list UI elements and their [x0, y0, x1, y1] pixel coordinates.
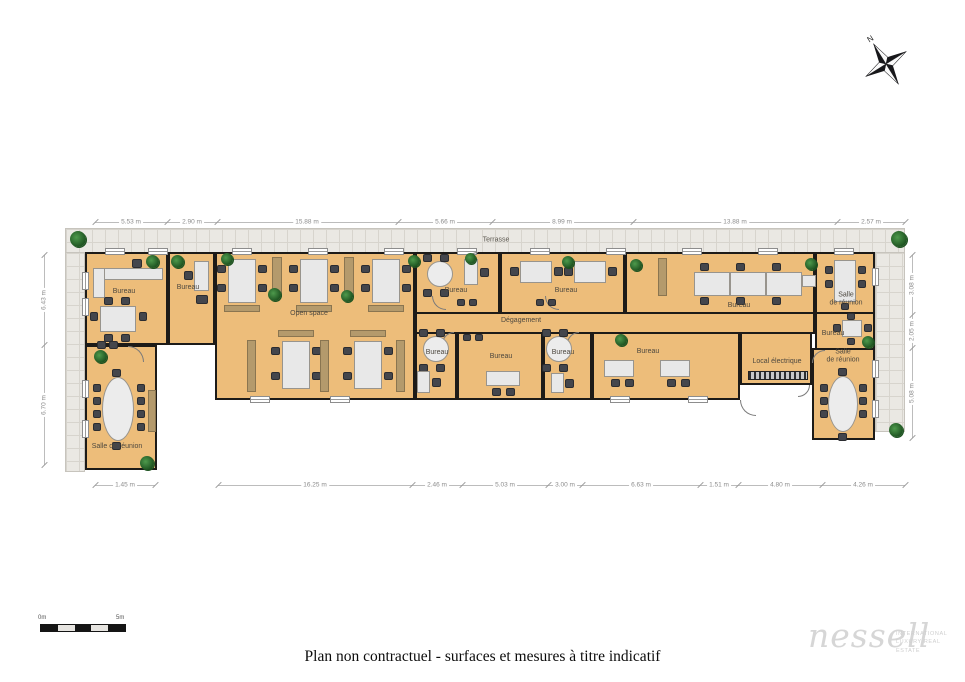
desk: [660, 360, 690, 377]
desk: [694, 272, 730, 296]
cabinet: [396, 340, 405, 392]
office-chair: [542, 364, 551, 372]
scale-zero-label: 0m: [38, 615, 46, 621]
office-chair: [847, 313, 855, 320]
compass-north-label: N: [866, 34, 876, 45]
room-label: Bureau: [637, 348, 660, 356]
logo-tagline: INTERNATIONAL LUXURY REAL ESTATE: [896, 630, 958, 655]
office-chair: [772, 297, 781, 305]
dimension-label: 4.80 m: [768, 482, 792, 489]
office-chair: [402, 265, 411, 273]
plant-icon: [805, 258, 817, 270]
meeting-table: [102, 377, 134, 441]
plant-icon: [615, 334, 627, 346]
logo-tagline-line1: INTERNATIONAL: [896, 630, 958, 638]
office-chair: [847, 338, 855, 345]
dimension-label: 6.43 m: [41, 288, 48, 312]
scale-segment: [108, 625, 125, 631]
window: [250, 396, 270, 403]
office-chair: [419, 329, 428, 337]
room-label: Local électrique: [752, 358, 801, 366]
office-chair: [859, 397, 867, 405]
room-label: Bureau: [728, 302, 751, 310]
office-chair: [97, 341, 106, 349]
office-chair: [736, 263, 745, 271]
dimension-label: 15.88 m: [293, 219, 321, 226]
dimension-tick: [902, 482, 908, 488]
equipment-rack: [748, 371, 808, 380]
dimension-label: 16.25 m: [301, 482, 329, 489]
office-chair: [196, 295, 208, 304]
office-chair: [772, 263, 781, 271]
scale-bar: [40, 624, 126, 632]
office-chair: [536, 299, 544, 306]
window: [82, 420, 89, 438]
office-chair: [121, 334, 130, 342]
office-chair: [559, 329, 568, 337]
floor-plan-page: N BureauBureauOpen spaceBureauBureauDéga…: [0, 0, 965, 682]
logo-tagline-line2: LUXURY REAL ESTATE: [896, 638, 958, 655]
dimension-label: 5.03 m: [493, 482, 517, 489]
office-chair: [436, 364, 445, 372]
scale-segment: [91, 625, 108, 631]
window: [308, 248, 328, 255]
office-chair: [384, 347, 393, 355]
dimension-label: 1.51 m: [707, 482, 731, 489]
dimension-label: 3.00 m: [553, 482, 577, 489]
cabinet: [148, 390, 156, 432]
plant-icon: [341, 290, 353, 302]
desk: [766, 272, 802, 296]
window: [384, 248, 404, 255]
office-chair: [492, 388, 501, 396]
office-chair: [469, 299, 477, 306]
plant-icon: [70, 231, 86, 247]
room-label: Bureau: [490, 353, 513, 361]
dimension-line: [44, 255, 45, 465]
office-chair: [184, 271, 193, 280]
office-chair: [258, 284, 267, 292]
plant-icon: [562, 256, 574, 268]
desk: [574, 261, 606, 283]
office-chair: [859, 384, 867, 392]
window: [682, 248, 702, 255]
office-chair: [440, 254, 449, 262]
shelf: [368, 305, 404, 312]
terrace-label: Terrasse: [483, 237, 510, 244]
office-chair: [820, 410, 828, 418]
office-chair: [436, 329, 445, 337]
scale-segment: [58, 625, 75, 631]
room-label: Salle de réunion: [829, 292, 862, 309]
shelf: [350, 330, 386, 337]
plant-icon: [891, 231, 907, 247]
desk: [551, 373, 564, 393]
window: [758, 248, 778, 255]
dimension-label: 2.90 m: [180, 219, 204, 226]
desk: [372, 259, 400, 303]
office-chair: [858, 266, 866, 274]
scale-segment: [41, 625, 58, 631]
office-chair: [542, 329, 551, 337]
room-label: Open space: [290, 310, 328, 318]
dimension-label: 2.05 m: [909, 319, 916, 343]
office-chair: [271, 347, 280, 355]
office-chair: [820, 384, 828, 392]
plant-icon: [862, 336, 874, 348]
room-label: Bureau: [113, 288, 136, 296]
window: [530, 248, 550, 255]
office-chair: [109, 341, 118, 349]
dimension-label: 5.53 m: [119, 219, 143, 226]
office-chair: [132, 259, 142, 268]
desk: [604, 360, 634, 377]
room-label: Bureau: [555, 287, 578, 295]
dimension-tick: [902, 219, 908, 225]
desk: [93, 268, 105, 298]
plant-icon: [171, 255, 184, 268]
window: [82, 380, 89, 398]
dimension-label: 6.70 m: [41, 393, 48, 417]
office-chair: [825, 266, 833, 274]
dimension-label: 5.66 m: [433, 219, 457, 226]
office-chair: [343, 372, 352, 380]
desk: [100, 306, 136, 332]
dimension-label: 3.08 m: [909, 273, 916, 297]
office-chair: [217, 265, 226, 273]
office-chair: [90, 312, 98, 321]
office-chair: [289, 265, 298, 273]
office-chair: [93, 397, 101, 405]
office-chair: [343, 347, 352, 355]
dimension-label: 4.26 m: [851, 482, 875, 489]
office-chair: [402, 284, 411, 292]
office-chair: [121, 297, 130, 305]
office-chair: [820, 397, 828, 405]
office-chair: [361, 284, 370, 292]
room-label: Bureau: [822, 330, 845, 338]
office-chair: [825, 280, 833, 288]
room-label: Dégagement: [501, 317, 541, 325]
plant-icon: [889, 423, 903, 437]
plant-icon: [465, 253, 476, 264]
window: [82, 272, 89, 290]
room-label: Salle de réunion: [826, 349, 859, 366]
window: [688, 396, 708, 403]
office-chair: [475, 334, 483, 341]
office-chair: [93, 423, 101, 431]
room-label: Bureau: [445, 287, 468, 295]
office-chair: [330, 284, 339, 292]
scale-max-label: 5m: [116, 615, 124, 621]
meeting-table: [828, 376, 858, 432]
office-chair: [564, 267, 573, 276]
desk: [228, 259, 256, 303]
dimension-label: 2.46 m: [425, 482, 449, 489]
office-chair: [432, 378, 441, 387]
door-arc: [740, 400, 756, 416]
desk: [282, 341, 310, 389]
office-chair: [330, 265, 339, 273]
office-chair: [112, 369, 121, 377]
window: [610, 396, 630, 403]
office-chair: [700, 297, 709, 305]
window: [872, 400, 879, 418]
office-chair: [506, 388, 515, 396]
office-chair: [139, 312, 147, 321]
window: [105, 248, 125, 255]
compass-rose: N: [855, 28, 917, 94]
office-chair: [384, 372, 393, 380]
plant-icon: [408, 255, 420, 267]
office-chair: [510, 267, 519, 276]
desk: [300, 259, 328, 303]
dimension-label: 6.63 m: [629, 482, 653, 489]
shelf: [278, 330, 314, 337]
dimension-label: 13.88 m: [721, 219, 749, 226]
window: [232, 248, 252, 255]
office-chair: [137, 384, 145, 392]
agency-logo: nessell INTERNATIONAL LUXURY REAL ESTATE: [808, 616, 958, 664]
office-chair: [217, 284, 226, 292]
office-chair: [137, 397, 145, 405]
window: [82, 298, 89, 316]
office-chair: [681, 379, 690, 387]
room-label: Salle de réunion: [92, 443, 143, 451]
office-chair: [864, 324, 872, 332]
office-chair: [667, 379, 676, 387]
office-chair: [463, 334, 471, 341]
office-chair: [289, 284, 298, 292]
desk: [802, 275, 816, 287]
desk: [486, 371, 520, 386]
office-chair: [423, 254, 432, 262]
dimension-tick: [909, 435, 915, 441]
shelf: [224, 305, 260, 312]
door-arc: [798, 385, 810, 397]
office-chair: [838, 368, 847, 376]
cabinet: [658, 258, 667, 296]
office-chair: [548, 299, 556, 306]
office-chair: [565, 379, 574, 388]
dimension-tick: [152, 482, 158, 488]
plant-icon: [146, 255, 159, 268]
office-chair: [137, 423, 145, 431]
office-chair: [608, 267, 617, 276]
office-chair: [104, 297, 113, 305]
office-chair: [361, 265, 370, 273]
window: [606, 248, 626, 255]
room-label: Bureau: [177, 284, 200, 292]
office-chair: [93, 410, 101, 418]
desk: [730, 272, 766, 296]
room-label: Bureau: [552, 349, 575, 357]
office-chair: [554, 267, 563, 276]
office-chair: [858, 280, 866, 288]
dimension-label: 1.45 m: [113, 482, 137, 489]
office-chair: [93, 384, 101, 392]
office-chair: [700, 263, 709, 271]
window: [834, 248, 854, 255]
office-chair: [457, 299, 465, 306]
office-chair: [838, 433, 847, 441]
window: [330, 396, 350, 403]
dimension-label: 2.57 m: [859, 219, 883, 226]
dimension-label: 8.99 m: [550, 219, 574, 226]
window: [148, 248, 168, 255]
office-chair: [271, 372, 280, 380]
corridor-degagement: [415, 312, 815, 334]
plant-icon: [140, 456, 154, 470]
office-chair: [480, 268, 489, 277]
desk: [417, 371, 430, 393]
window: [872, 268, 879, 286]
room-label: Bureau: [426, 349, 449, 357]
plant-icon: [94, 350, 107, 363]
office-chair: [625, 379, 634, 387]
scale-segment: [75, 625, 92, 631]
plant-icon: [221, 253, 233, 265]
desk: [842, 320, 862, 337]
office-chair: [258, 265, 267, 273]
plant-icon: [630, 259, 642, 271]
dimension-label: 5.08 m: [909, 381, 916, 405]
desk: [520, 261, 552, 283]
cabinet: [247, 340, 256, 392]
plant-icon: [268, 288, 281, 301]
terrace-area: [875, 252, 905, 432]
cabinet: [320, 340, 329, 392]
office-chair: [559, 364, 568, 372]
office-chair: [611, 379, 620, 387]
office-chair: [423, 289, 432, 297]
round-table: [427, 261, 453, 287]
window: [872, 360, 879, 378]
office-chair: [137, 410, 145, 418]
desk: [354, 341, 382, 389]
office-chair: [859, 410, 867, 418]
dimension-tick: [41, 462, 47, 468]
